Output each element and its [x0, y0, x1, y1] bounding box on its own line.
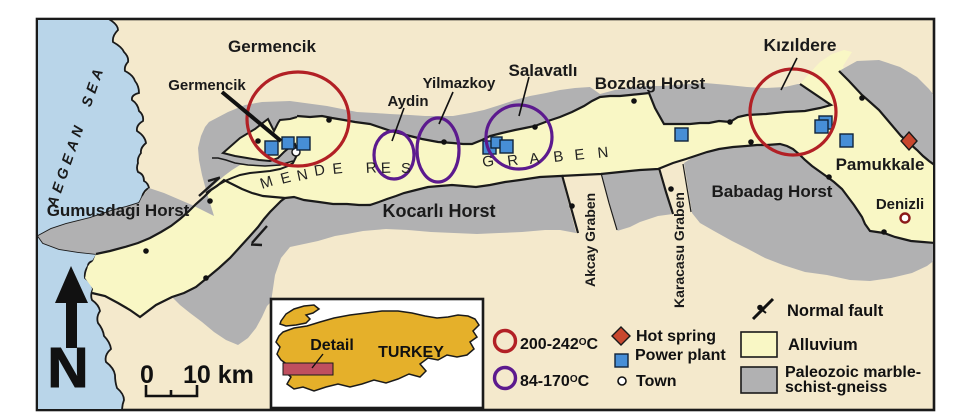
- svg-text:Bozdag Horst: Bozdag Horst: [595, 74, 706, 93]
- svg-text:E: E: [381, 160, 392, 177]
- svg-text:Detail: Detail: [310, 337, 354, 354]
- svg-text:E: E: [574, 146, 586, 164]
- svg-text:schist-gneiss: schist-gneiss: [785, 379, 887, 396]
- svg-text:Normal fault: Normal fault: [787, 302, 884, 320]
- svg-text:E: E: [332, 160, 344, 178]
- svg-text:Germencik: Germencik: [168, 77, 246, 94]
- svg-text:TURKEY: TURKEY: [378, 344, 444, 361]
- svg-text:G: G: [481, 153, 495, 171]
- svg-text:Babadag Horst: Babadag Horst: [712, 182, 833, 201]
- svg-text:Salavatlı: Salavatlı: [509, 61, 578, 80]
- svg-text:Hot spring: Hot spring: [636, 328, 716, 345]
- svg-text:Aydin: Aydin: [387, 93, 428, 110]
- svg-text:Karacasu Graben: Karacasu Graben: [671, 192, 687, 308]
- svg-text:10 km: 10 km: [183, 361, 254, 389]
- svg-text:R: R: [365, 159, 377, 177]
- svg-text:Yilmazkoy: Yilmazkoy: [423, 75, 496, 92]
- svg-text:B: B: [552, 148, 564, 166]
- svg-text:Denizli: Denizli: [876, 196, 924, 213]
- svg-text:S: S: [401, 160, 411, 177]
- svg-text:Alluvium: Alluvium: [788, 336, 858, 354]
- svg-text:Town: Town: [636, 373, 677, 390]
- svg-text:Kızıldere: Kızıldere: [764, 35, 837, 55]
- svg-text:Akcay Graben: Akcay Graben: [582, 193, 598, 287]
- svg-text:N: N: [47, 336, 88, 400]
- svg-text:Gumusdagi Horst: Gumusdagi Horst: [47, 201, 190, 220]
- svg-text:200-242OC: 200-242OC: [520, 336, 599, 353]
- svg-text:Kocarlı Horst: Kocarlı Horst: [382, 201, 495, 221]
- svg-text:Power plant: Power plant: [635, 347, 726, 364]
- svg-text:0: 0: [140, 361, 154, 389]
- svg-text:84-170OC: 84-170OC: [520, 373, 590, 390]
- svg-text:Pamukkale: Pamukkale: [836, 155, 925, 174]
- svg-text:Germencik: Germencik: [228, 37, 316, 56]
- svg-text:N: N: [597, 144, 610, 162]
